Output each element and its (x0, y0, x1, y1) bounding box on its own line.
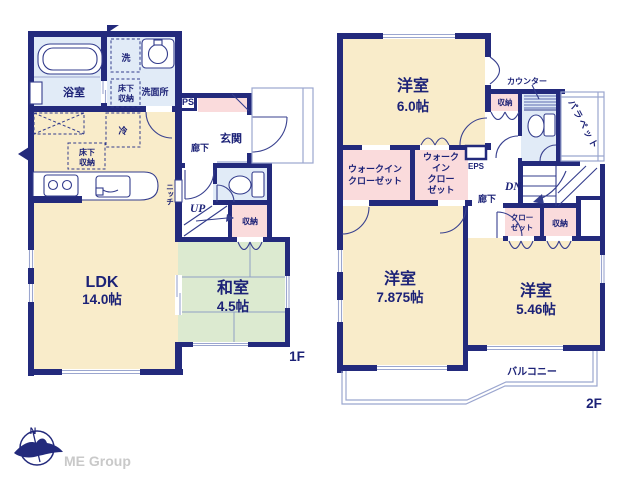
bath-label: 浴室 (63, 85, 85, 99)
floor1-plan: 浴室 洗 床下 収納 洗面所 PS 玄関 廊下 冷 床下 収納 ニッチ UP 収… (18, 25, 313, 376)
washer-label: 洗 (121, 52, 130, 63)
stove-icon (44, 175, 78, 196)
ldk-room (30, 112, 180, 374)
counter-area (524, 94, 556, 110)
underfloor-washroom-label2: 収納 (118, 93, 134, 103)
vent-mark-left (18, 147, 29, 161)
floor1-label: 1F (289, 349, 305, 364)
compass: N (14, 426, 63, 465)
underfloor-kitchen-label2: 収納 (79, 157, 95, 167)
washbasin-icon (142, 39, 174, 68)
wic-small-label1: ウォーク (423, 152, 459, 162)
bedroom2-name: 洋室 (384, 269, 416, 288)
counter-label: カウンター (507, 76, 547, 86)
balcony-label: バルコニー (507, 366, 557, 378)
washitsu-name: 和室 (217, 278, 249, 297)
ldk-size: 14.0帖 (82, 291, 122, 307)
eps-shaft (466, 146, 486, 159)
hallway1-label: 廊下 (191, 142, 209, 153)
wic-small-label4: ゼット (427, 184, 454, 195)
bedroom2-size: 7.875帖 (376, 289, 424, 305)
ldk-name: LDK (86, 274, 119, 291)
niche-slot (175, 180, 182, 202)
closet-label2: ゼット (511, 222, 534, 232)
wic-small-label2: イン (432, 163, 450, 173)
storage-hall-label: 収納 (552, 218, 568, 228)
kitchen-counter (30, 172, 158, 203)
up-label: UP (190, 203, 206, 215)
entrance-label: 玄関 (220, 131, 242, 145)
washroom-label: 洗面所 (141, 86, 168, 97)
brand-logo-text: ME Group (64, 453, 131, 469)
storage1-label: 収納 (242, 216, 258, 226)
bedroom1-name: 洋室 (397, 76, 429, 95)
floorplan-page: 浴室 洗 床下 収納 洗面所 PS 玄関 廊下 冷 床下 収納 ニッチ UP 収… (0, 0, 640, 480)
wic-large-label1: ウォークイン (348, 164, 402, 174)
eps-label: EPS (468, 162, 485, 171)
hallway2-label: 廊下 (478, 193, 496, 204)
underfloor-kitchen-label1: 床下 (79, 147, 95, 157)
closet-label1: クロー (511, 212, 534, 222)
ps-label: PS (182, 97, 194, 107)
floor2-plan: 洋室 6.0帖 カウンター 収納 パラペット ウォークイン クローゼット ウォー… (337, 33, 605, 411)
fridge-label: 冷 (118, 125, 127, 136)
bedroom3-name: 洋室 (520, 281, 552, 300)
parapet-label: パラペット (566, 98, 602, 152)
compass-north-label: N (30, 426, 37, 436)
toilet2-icon (528, 114, 555, 137)
wic-large-label2: クローゼット (348, 175, 402, 186)
storage-top-label: 収納 (498, 97, 513, 107)
wic-large-room (340, 148, 412, 202)
bedroom1-size: 6.0帖 (397, 98, 430, 114)
wic-small-label3: クロー (427, 174, 454, 184)
bedroom3-size: 5.46帖 (516, 301, 556, 317)
washitsu-size: 4.5帖 (217, 298, 250, 314)
dn-label: DN (504, 181, 522, 193)
entrance-porch (252, 88, 313, 163)
floor2-label: 2F (586, 396, 602, 411)
niche-label: ニッチ (165, 183, 174, 206)
underfloor-washroom-label1: 床下 (118, 83, 134, 93)
floorplan-drawing: 浴室 洗 床下 収納 洗面所 PS 玄関 廊下 冷 床下 収納 ニッチ UP 収… (0, 0, 640, 480)
